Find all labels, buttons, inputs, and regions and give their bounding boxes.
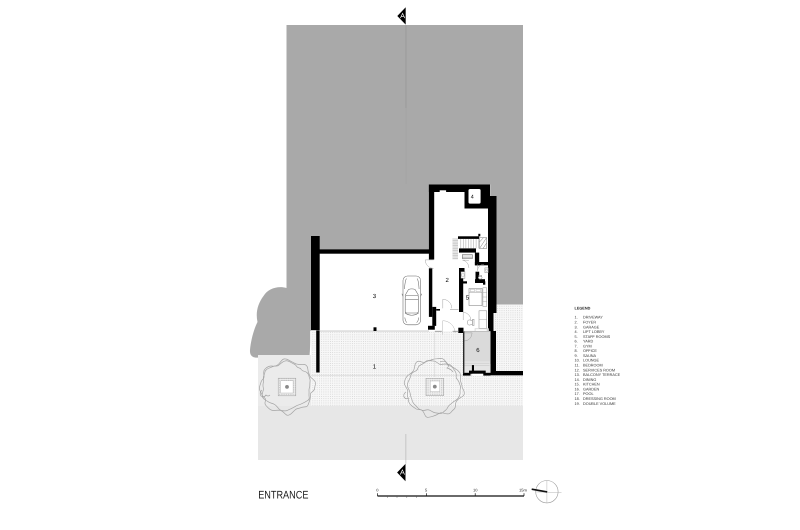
svg-text:10: 10: [473, 487, 478, 492]
svg-text:DINING: DINING: [583, 377, 596, 382]
svg-text:19.: 19.: [575, 401, 580, 406]
svg-text:LOUNGE: LOUNGE: [583, 358, 599, 363]
svg-text:FOYER: FOYER: [583, 320, 596, 325]
svg-text:5.: 5.: [575, 334, 578, 339]
svg-text:OFFICE: OFFICE: [583, 349, 597, 354]
svg-text:YARD: YARD: [583, 339, 594, 344]
svg-text:KITCHEN: KITCHEN: [583, 382, 600, 387]
svg-text:7.: 7.: [575, 344, 578, 349]
svg-text:DOUBLE VOLUME: DOUBLE VOLUME: [583, 401, 616, 406]
svg-text:POOL: POOL: [583, 392, 594, 397]
svg-text:13.: 13.: [575, 373, 580, 378]
svg-text:BEDROOM: BEDROOM: [583, 363, 603, 368]
svg-text:DRIVEWAY: DRIVEWAY: [583, 315, 603, 320]
svg-text:15.: 15.: [575, 382, 580, 387]
svg-text:GYM: GYM: [583, 344, 592, 349]
svg-text:12.: 12.: [575, 368, 580, 373]
svg-text:17.: 17.: [575, 392, 580, 397]
svg-text:GARAGE: GARAGE: [583, 325, 599, 330]
svg-text:11.: 11.: [575, 363, 580, 368]
svg-text:SAUNA: SAUNA: [583, 353, 597, 358]
svg-text:LEGEND: LEGEND: [575, 306, 591, 311]
svg-text:1.: 1.: [575, 315, 578, 320]
svg-text:10.: 10.: [575, 358, 580, 363]
svg-text:GARDEN: GARDEN: [583, 387, 599, 392]
svg-text:14.: 14.: [575, 377, 580, 382]
svg-text:9.: 9.: [575, 353, 578, 358]
svg-text:LIFT LOBBY: LIFT LOBBY: [583, 330, 604, 335]
svg-text:2.: 2.: [575, 320, 578, 325]
svg-text:6.: 6.: [575, 339, 578, 344]
svg-text:STAFF ROOMS: STAFF ROOMS: [583, 334, 610, 339]
svg-text:4.: 4.: [575, 330, 578, 335]
svg-text:15m: 15m: [519, 487, 527, 492]
svg-text:SERVICES ROOM: SERVICES ROOM: [583, 368, 615, 373]
svg-text:3.: 3.: [575, 325, 578, 330]
svg-text:8.: 8.: [575, 349, 578, 354]
svg-text:18.: 18.: [575, 396, 580, 401]
svg-text:DRESSING ROOM: DRESSING ROOM: [583, 396, 616, 401]
svg-text:4: 4: [471, 194, 474, 200]
svg-text:BALCONY TERRACE: BALCONY TERRACE: [583, 373, 620, 378]
svg-text:ENTRANCE: ENTRANCE: [258, 489, 308, 501]
svg-text:16.: 16.: [575, 387, 580, 392]
